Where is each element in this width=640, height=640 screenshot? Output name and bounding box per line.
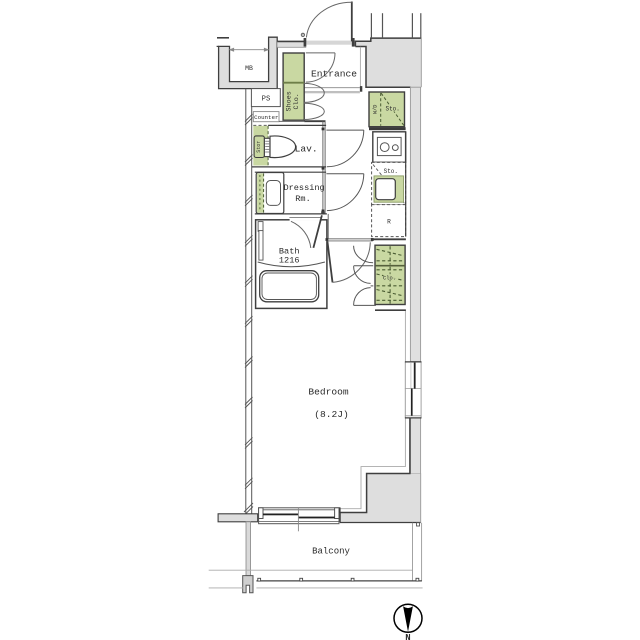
- svg-text:Sto.: Sto.: [385, 105, 399, 112]
- svg-text:Counter: Counter: [254, 114, 278, 121]
- svg-text:Rm.: Rm.: [295, 194, 310, 204]
- svg-text:Sto.: Sto.: [384, 168, 398, 175]
- svg-text:PS: PS: [262, 95, 271, 103]
- svg-text:Bedroom: Bedroom: [308, 386, 349, 397]
- svg-text:Clo.: Clo.: [293, 93, 301, 109]
- svg-text:Entrance: Entrance: [311, 68, 357, 79]
- svg-text:R: R: [387, 218, 391, 225]
- svg-text:Stor: Stor: [256, 141, 262, 153]
- svg-text:Lav.: Lav.: [295, 144, 318, 155]
- svg-text:N: N: [405, 633, 410, 640]
- svg-text:Clo.: Clo.: [383, 275, 396, 281]
- svg-text:(8.2J): (8.2J): [314, 409, 349, 420]
- svg-text:MB: MB: [245, 65, 253, 72]
- svg-text:Dressing: Dressing: [283, 183, 324, 193]
- svg-text:W/D: W/D: [373, 105, 379, 114]
- svg-text:Balcony: Balcony: [312, 547, 350, 557]
- svg-text:1216: 1216: [279, 255, 300, 265]
